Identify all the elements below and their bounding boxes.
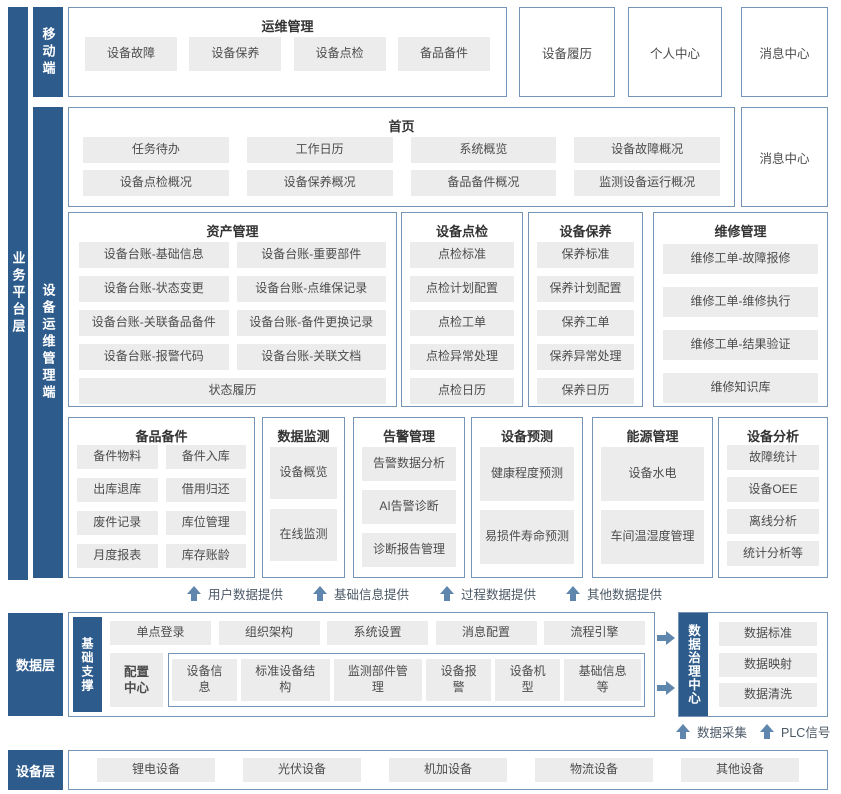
layer-label-text: 基础支撑 [79, 637, 96, 693]
layer-label-text: 数据层 [16, 655, 55, 674]
module-button[interactable]: 单点登录 [110, 621, 211, 645]
up-arrow-icon [440, 586, 454, 601]
layer-label-data: 数据层 [8, 613, 63, 716]
section-title: 备品备件 [69, 418, 254, 439]
section-asset-management: 资产管理 设备台账-基础信息设备台账-重要部件设备台账-状态变更设备台账-点维保… [68, 212, 397, 407]
asset-buttons: 设备台账-基础信息设备台账-重要部件设备台账-状态变更设备台账-点维保记录设备台… [79, 242, 386, 404]
module-button[interactable]: 设备台账-关联文档 [237, 344, 387, 370]
module-button[interactable]: 保养计划配置 [537, 276, 634, 302]
module-button[interactable]: 库位管理 [166, 511, 247, 535]
module-button[interactable]: 点检异常处理 [410, 344, 514, 370]
module-button[interactable]: 设备故障概况 [574, 137, 720, 163]
module-button[interactable]: 保养日历 [537, 378, 634, 404]
module-button[interactable]: 保养标准 [537, 242, 634, 268]
section-title: 设备分析 [719, 418, 827, 439]
base-config-subbox: 设备信息标准设备结构监测部件管理设备报警设备机型基础信息等 [168, 653, 645, 707]
module-button[interactable]: 设备机型 [495, 659, 560, 701]
module-button[interactable]: 设备概览 [270, 447, 337, 499]
section-repair-management: 维修管理 维修工单-故障报修维修工单-维修执行维修工单-结果验证维修知识库 [653, 212, 828, 407]
module-button[interactable]: 告警数据分析 [362, 447, 456, 481]
section-device-layer: 锂电设备光伏设备机加设备物流设备其他设备 [68, 750, 828, 790]
module-button[interactable]: 标准设备结构 [241, 659, 330, 701]
module-button[interactable]: AI告警诊断 [362, 490, 456, 524]
module-button[interactable]: 保养异常处理 [537, 344, 634, 370]
section-spot-inspection: 设备点检 点检标准点检计划配置点检工单点检异常处理点检日历 [401, 212, 523, 407]
module-button[interactable]: 保养工单 [537, 310, 634, 336]
home-buttons: 任务待办工作日历系统概览设备故障概况设备点检概况设备保养概况备品备件概况监测设备… [83, 137, 720, 196]
data-flow-label: 过程数据提供 [461, 584, 536, 603]
module-button[interactable]: 备品备件 [398, 37, 490, 71]
module-button[interactable]: 统计分析等 [727, 541, 819, 566]
section-device-analysis: 设备分析 故障统计设备OEE离线分析统计分析等 [718, 417, 828, 578]
module-button[interactable]: 设备台账-备件更换记录 [237, 310, 387, 336]
module-button[interactable]: 机加设备 [389, 758, 507, 782]
module-button[interactable]: 设备报警 [426, 659, 491, 701]
module-button[interactable]: 组织架构 [219, 621, 320, 645]
module-button[interactable]: 点检工单 [410, 310, 514, 336]
governance-buttons: 数据标准数据映射数据清洗 [719, 622, 817, 707]
module-button[interactable]: 其他设备 [681, 758, 799, 782]
module-button[interactable]: 系统设置 [327, 621, 428, 645]
tile-label: 个人中心 [650, 43, 700, 62]
module-button[interactable]: 状态履历 [79, 378, 386, 404]
module-button[interactable]: 设备OEE [727, 477, 819, 502]
module-button[interactable]: 物流设备 [535, 758, 653, 782]
module-button[interactable]: 离线分析 [727, 509, 819, 534]
data-flow-process: 过程数据提供 [440, 584, 536, 603]
section-title: 能源管理 [593, 418, 712, 439]
module-button[interactable]: 点检日历 [410, 378, 514, 404]
prediction-buttons: 健康程度预测易损件寿命预测 [480, 447, 574, 564]
base-support-label: 基础支撑 [73, 617, 102, 712]
base-row1: 单点登录组织架构系统设置消息配置流程引擎 [110, 621, 645, 645]
section-data-governance: 数据治理中心 数据标准数据映射数据清洗 [678, 612, 828, 717]
ops-buttons: 设备故障设备保养设备点检备品备件 [85, 37, 490, 71]
data-flow-user: 用户数据提供 [187, 584, 283, 603]
flow-data-collect: 数据采集 [676, 722, 747, 741]
data-flow-other: 其他数据提供 [566, 584, 662, 603]
alarm-buttons: 告警数据分析AI告警诊断诊断报告管理 [362, 447, 456, 567]
base-support-content: 单点登录组织架构系统设置消息配置流程引擎 配置中心 设备信息标准设备结构监测部件… [110, 621, 645, 707]
layer-label-device: 设备层 [8, 750, 63, 790]
module-button[interactable]: 数据标准 [719, 622, 817, 646]
section-spare-parts: 备品备件 备件物料备件入库出库退库借用归还废件记录库位管理月度报表库存账龄 [68, 417, 255, 578]
module-button[interactable]: 故障统计 [727, 445, 819, 470]
module-button[interactable]: 维修工单-故障报修 [663, 244, 818, 274]
tile-label: 消息中心 [759, 43, 809, 62]
module-button[interactable]: 设备台账-点维保记录 [237, 276, 387, 302]
up-arrow-icon [313, 586, 327, 601]
data-flow-label: 其他数据提供 [587, 584, 662, 603]
module-button[interactable]: 设备点检 [294, 37, 386, 71]
module-button[interactable]: 监测部件管理 [334, 659, 423, 701]
module-button[interactable]: 在线监测 [270, 509, 337, 561]
module-button[interactable]: 备品备件概况 [411, 170, 557, 196]
section-title: 首页 [69, 108, 734, 129]
module-button[interactable]: 光伏设备 [243, 758, 361, 782]
module-button[interactable]: 设备保养概况 [247, 170, 393, 196]
module-button[interactable]: 月度报表 [77, 544, 158, 568]
layer-label-text: 移动端 [39, 27, 58, 78]
section-title: 设备点检 [402, 213, 522, 234]
module-button[interactable]: 设备台账-状态变更 [79, 276, 229, 302]
layer-label-business-platform: 业务平台层 [8, 7, 28, 580]
maintenance-buttons: 保养标准保养计划配置保养工单保养异常处理保养日历 [537, 242, 634, 404]
module-button[interactable]: 任务待办 [83, 137, 229, 163]
tile-personal-center[interactable]: 个人中心 [628, 7, 722, 97]
module-button[interactable]: 维修知识库 [663, 373, 818, 403]
module-button[interactable]: 车间温湿度管理 [601, 510, 704, 564]
section-title: 运维管理 [69, 8, 506, 29]
module-button[interactable]: 废件记录 [77, 511, 158, 535]
tile-label: 消息中心 [759, 148, 809, 167]
module-button[interactable]: 备件物料 [77, 445, 158, 469]
base-row2: 配置中心 设备信息标准设备结构监测部件管理设备报警设备机型基础信息等 [110, 653, 645, 707]
module-button[interactable]: 诊断报告管理 [362, 533, 456, 567]
module-button[interactable]: 设备保养 [189, 37, 281, 71]
analysis-buttons: 故障统计设备OEE离线分析统计分析等 [727, 445, 819, 566]
module-button[interactable]: 维修工单-结果验证 [663, 330, 818, 360]
module-button[interactable]: 设备台账-基础信息 [79, 242, 229, 268]
data-flow-label: PLC信号 [781, 722, 830, 741]
inspection-buttons: 点检标准点检计划配置点检工单点检异常处理点检日历 [410, 242, 514, 404]
layer-label-text: 设备运维管理端 [39, 283, 58, 402]
section-maintenance: 设备保养 保养标准保养计划配置保养工单保养异常处理保养日历 [528, 212, 643, 407]
tile-device-history[interactable]: 设备履历 [519, 7, 615, 97]
section-home: 首页 任务待办工作日历系统概览设备故障概况设备点检概况设备保养概况备品备件概况监… [68, 107, 735, 207]
device-buttons: 锂电设备光伏设备机加设备物流设备其他设备 [69, 751, 827, 789]
governance-label: 数据治理中心 [679, 613, 708, 716]
spare-buttons: 备件物料备件入库出库退库借用归还废件记录库位管理月度报表库存账龄 [77, 445, 246, 568]
tile-label: 设备履历 [542, 43, 592, 62]
section-energy-management: 能源管理 设备水电车间温湿度管理 [592, 417, 713, 578]
section-data-monitoring: 数据监测 设备概览在线监测 [262, 417, 345, 578]
layer-label-mobile: 移动端 [33, 7, 63, 97]
layer-label-text: 设备层 [16, 761, 55, 780]
section-title: 资产管理 [69, 213, 396, 234]
flow-plc-signal: PLC信号 [760, 722, 830, 741]
module-button[interactable]: 出库退库 [77, 478, 158, 502]
module-button[interactable]: 库存账龄 [166, 544, 247, 568]
up-arrow-icon [760, 724, 774, 739]
tile-message-center[interactable]: 消息中心 [741, 107, 828, 207]
module-button[interactable]: 数据清洗 [719, 683, 817, 707]
module-button[interactable]: 易损件寿命预测 [480, 510, 574, 564]
repair-buttons: 维修工单-故障报修维修工单-维修执行维修工单-结果验证维修知识库 [663, 244, 818, 403]
module-button[interactable]: 消息配置 [436, 621, 537, 645]
module-button[interactable]: 借用归还 [166, 478, 247, 502]
module-button[interactable]: 点检标准 [410, 242, 514, 268]
module-button[interactable]: 锂电设备 [97, 758, 215, 782]
right-arrow-icon [657, 681, 675, 695]
data-flow-label: 用户数据提供 [208, 584, 283, 603]
module-button[interactable]: 设备故障 [85, 37, 177, 71]
section-title: 告警管理 [354, 418, 464, 439]
layer-label-text: 业务平台层 [9, 251, 28, 336]
config-center-button[interactable]: 配置中心 [110, 653, 163, 707]
module-button[interactable]: 系统概览 [411, 137, 557, 163]
up-arrow-icon [566, 586, 580, 601]
layer-label-device-ops: 设备运维管理端 [33, 107, 63, 578]
section-alarm-management: 告警管理 告警数据分析AI告警诊断诊断报告管理 [353, 417, 465, 578]
tile-message-center-mobile[interactable]: 消息中心 [741, 7, 828, 97]
module-button[interactable]: 点检计划配置 [410, 276, 514, 302]
section-base-support: 基础支撑 单点登录组织架构系统设置消息配置流程引擎 配置中心 设备信息标准设备结… [68, 612, 655, 717]
module-button[interactable]: 工作日历 [247, 137, 393, 163]
data-flow-label: 基础信息提供 [334, 584, 409, 603]
data-flow-base: 基础信息提供 [313, 584, 409, 603]
up-arrow-icon [187, 586, 201, 601]
module-button[interactable]: 数据映射 [719, 653, 817, 677]
data-flow-label: 数据采集 [697, 722, 747, 741]
section-ops-management: 运维管理 设备故障设备保养设备点检备品备件 [68, 7, 507, 97]
layer-label-text: 数据治理中心 [684, 624, 703, 705]
up-arrow-icon [676, 724, 690, 739]
module-button[interactable]: 备件入库 [166, 445, 247, 469]
module-button[interactable]: 设备信息 [172, 659, 237, 701]
architecture-diagram: 业务平台层 移动端 设备运维管理端 运维管理 设备故障设备保养设备点检备品备件 … [0, 0, 841, 794]
energy-buttons: 设备水电车间温湿度管理 [601, 447, 704, 564]
module-button[interactable]: 维修工单-维修执行 [663, 287, 818, 317]
section-title: 维修管理 [654, 213, 827, 234]
module-button[interactable]: 流程引擎 [544, 621, 645, 645]
module-button[interactable]: 设备台账-重要部件 [237, 242, 387, 268]
module-button[interactable]: 设备水电 [601, 447, 704, 501]
module-button[interactable]: 基础信息等 [564, 659, 641, 701]
section-title: 设备保养 [529, 213, 642, 234]
section-title: 数据监测 [263, 418, 344, 439]
right-arrow-icon [657, 631, 675, 645]
section-device-prediction: 设备预测 健康程度预测易损件寿命预测 [471, 417, 583, 578]
module-button[interactable]: 设备点检概况 [83, 170, 229, 196]
module-button[interactable]: 设备台账-报警代码 [79, 344, 229, 370]
module-button[interactable]: 监测设备运行概况 [574, 170, 720, 196]
module-button[interactable]: 健康程度预测 [480, 447, 574, 501]
module-button[interactable]: 设备台账-关联备品备件 [79, 310, 229, 336]
section-title: 设备预测 [472, 418, 582, 439]
monitor-buttons: 设备概览在线监测 [270, 447, 337, 561]
